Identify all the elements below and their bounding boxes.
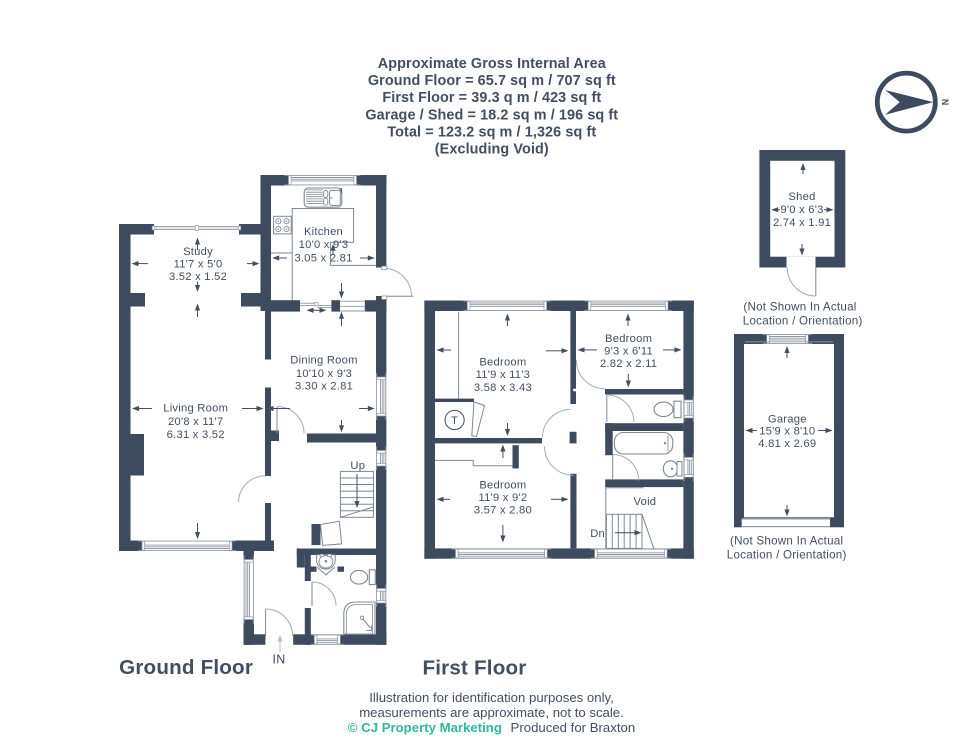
svg-text:T: T <box>451 415 458 427</box>
svg-text:Kitchen: Kitchen <box>304 226 343 238</box>
svg-text:N: N <box>940 99 950 105</box>
svg-text:measurements are approximate,: measurements are approximate, not to sca… <box>359 705 624 720</box>
svg-text:First Floor = 39.3 q m / 423 s: First Floor = 39.3 q m / 423 sq ft <box>382 90 601 106</box>
svg-text:Ground Floor: Ground Floor <box>119 656 253 679</box>
svg-text:(Excluding Void): (Excluding Void) <box>435 142 549 158</box>
svg-text:6.31 x 3.52: 6.31 x 3.52 <box>167 429 225 441</box>
svg-text:(Not Shown In Actual: (Not Shown In Actual <box>730 535 843 548</box>
svg-text:3.57 x 2.80: 3.57 x 2.80 <box>474 505 532 517</box>
svg-text:15'9 x 8'10: 15'9 x 8'10 <box>759 426 815 438</box>
svg-text:Illustration for identificatio: Illustration for identification purposes… <box>369 690 614 705</box>
svg-text:Study: Study <box>183 246 213 258</box>
svg-text:First Floor: First Floor <box>422 657 526 680</box>
svg-text:4.81 x 2.69: 4.81 x 2.69 <box>758 438 816 450</box>
svg-text:IN: IN <box>273 653 286 667</box>
svg-text:Dn: Dn <box>590 528 605 540</box>
svg-text:(Not Shown In Actual: (Not Shown In Actual <box>743 301 856 314</box>
svg-text:3.52 x 1.52: 3.52 x 1.52 <box>169 271 227 283</box>
svg-text:2.82 x 2.11: 2.82 x 2.11 <box>600 358 657 370</box>
svg-text:Approximate Gross Internal Are: Approximate Gross Internal Area <box>378 56 607 72</box>
svg-text:Bedroom: Bedroom <box>479 480 526 492</box>
svg-text:Up: Up <box>350 460 365 472</box>
svg-text:Location / Orientation): Location / Orientation) <box>743 315 863 328</box>
svg-text:10'10 x 9'3: 10'10 x 9'3 <box>296 368 352 380</box>
svg-text:Garage / Shed = 18.2 sq m / 19: Garage / Shed = 18.2 sq m / 196 sq ft <box>365 108 618 124</box>
svg-text:2.74 x 1.91: 2.74 x 1.91 <box>773 217 831 229</box>
svg-text:11'7 x 5'0: 11'7 x 5'0 <box>174 259 223 271</box>
svg-text:11'9 x 9'2: 11'9 x 9'2 <box>478 492 527 504</box>
svg-text:Bedroom: Bedroom <box>605 333 652 345</box>
svg-text:Shed: Shed <box>788 191 815 203</box>
svg-text:© CJ Property Marketing Produc: © CJ Property Marketing Produced for Bra… <box>348 720 635 735</box>
svg-text:Garage: Garage <box>768 414 807 426</box>
svg-text:Living Room: Living Room <box>163 403 228 415</box>
svg-text:10'0 x 9'3: 10'0 x 9'3 <box>299 239 349 251</box>
svg-text:3.30 x 2.81: 3.30 x 2.81 <box>295 380 353 392</box>
svg-text:9'3 x 6'11: 9'3 x 6'11 <box>604 346 653 358</box>
svg-text:Void: Void <box>634 496 657 508</box>
svg-text:20'8 x 11'7: 20'8 x 11'7 <box>168 416 223 428</box>
svg-text:11'9 x 11'3: 11'9 x 11'3 <box>476 369 531 381</box>
svg-text:Bedroom: Bedroom <box>479 357 526 369</box>
svg-text:3.58 x 3.43: 3.58 x 3.43 <box>474 382 532 394</box>
svg-text:9'0 x 6'3: 9'0 x 6'3 <box>780 204 823 216</box>
svg-text:Location / Orientation): Location / Orientation) <box>727 549 847 562</box>
svg-text:Ground Floor = 65.7 sq m / 707: Ground Floor = 65.7 sq m / 707 sq ft <box>368 73 616 89</box>
svg-text:3.05 x 2.81: 3.05 x 2.81 <box>294 253 352 265</box>
svg-text:Dining Room: Dining Room <box>290 355 357 367</box>
svg-text:Total = 123.2 sq m / 1,326 sq: Total = 123.2 sq m / 1,326 sq ft <box>387 125 596 141</box>
